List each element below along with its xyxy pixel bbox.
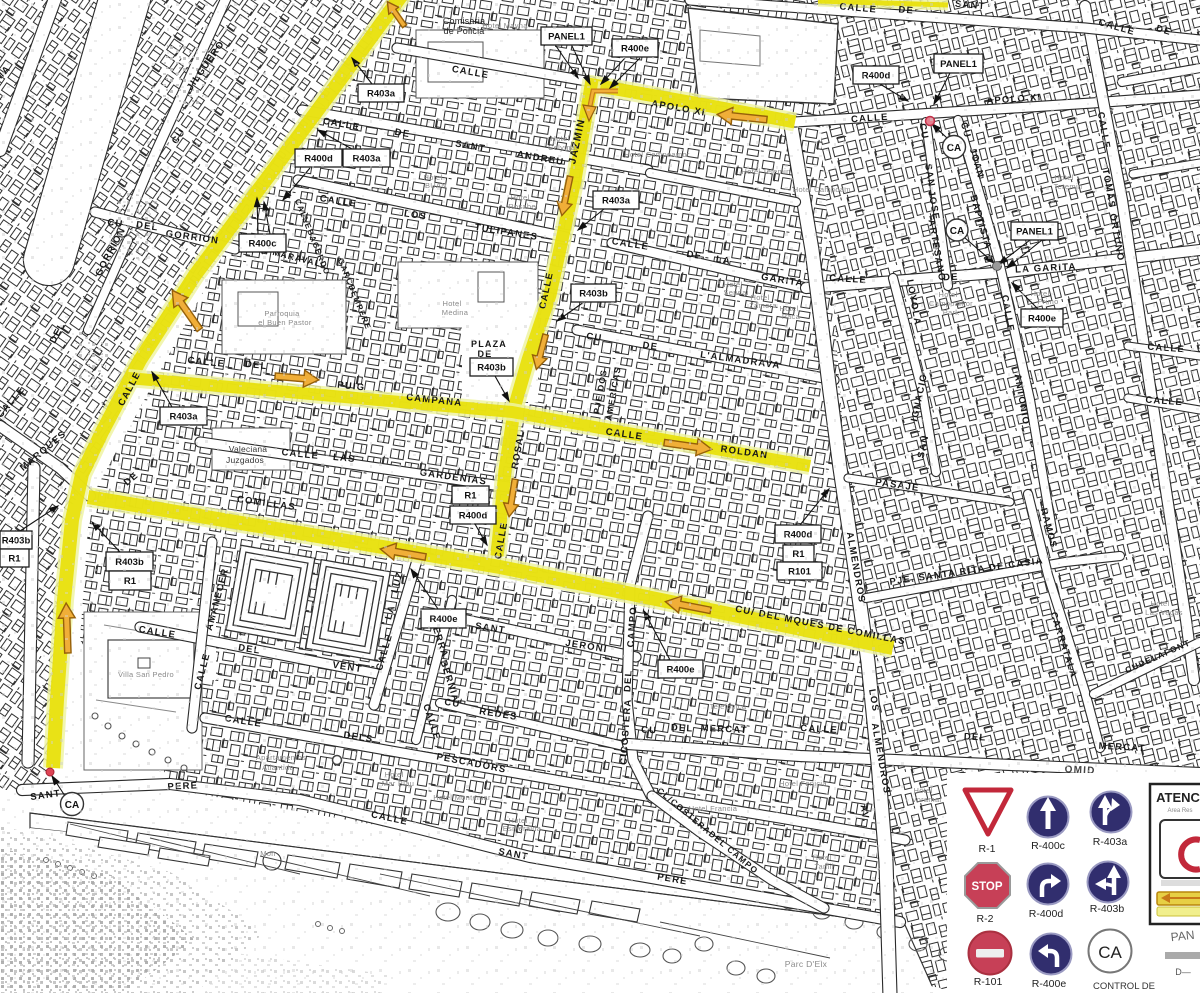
svg-text:R-400d: R-400d — [1029, 908, 1064, 920]
svg-text:Area Res: Area Res — [1167, 808, 1192, 814]
svg-text:PAN: PAN — [1170, 928, 1195, 944]
svg-text:ATENC: ATENC — [1156, 790, 1200, 805]
svg-text:D—: D— — [1175, 967, 1191, 977]
svg-text:R-400e: R-400e — [1032, 978, 1067, 990]
svg-text:R-1: R-1 — [979, 843, 996, 855]
svg-text:CA: CA — [1098, 943, 1122, 962]
svg-text:R-101: R-101 — [974, 976, 1003, 988]
svg-text:STOP: STOP — [971, 881, 1002, 893]
svg-text:CONTROL DE: CONTROL DE — [1093, 981, 1155, 992]
svg-text:R-2: R-2 — [977, 913, 994, 925]
svg-text:R-400c: R-400c — [1031, 840, 1065, 852]
svg-text:R-403a: R-403a — [1093, 836, 1128, 848]
svg-text:R-403b: R-403b — [1090, 903, 1125, 915]
